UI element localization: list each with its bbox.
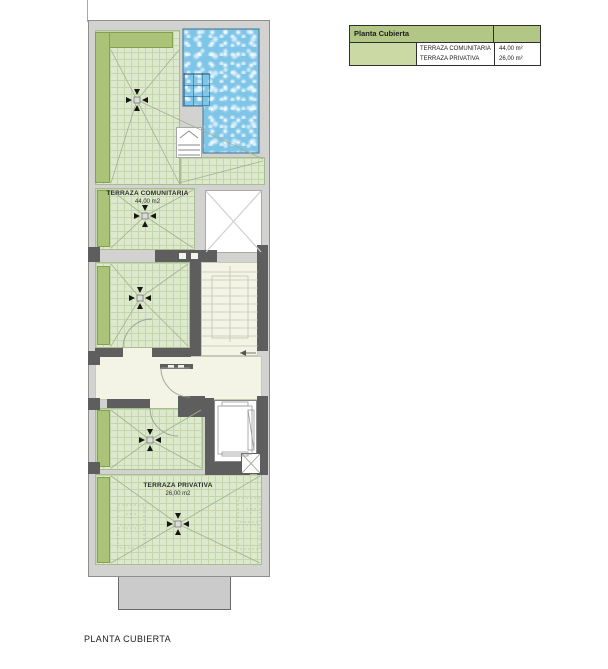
sheet-title: PLANTA CUBIERTA	[84, 634, 171, 644]
wall-stub	[88, 462, 100, 474]
floor-plan-sheet: TERRAZA COMUNITARIA 44,00 m2 TERRAZA PRI…	[0, 0, 608, 669]
legend-values: 44,00 m² 26,00 m²	[495, 43, 540, 65]
wall-stub	[160, 364, 193, 369]
planter-left-3	[97, 266, 110, 345]
terrace-strip-below-pool	[180, 157, 265, 185]
legend-value: 44,00 m²	[499, 44, 540, 54]
door-opening	[123, 348, 152, 357]
skylight-shaft	[205, 190, 262, 253]
legend-header: Planta Cubierta	[350, 26, 494, 42]
door-opening	[150, 399, 178, 408]
wall-slot	[191, 253, 198, 259]
legend-color-swatch	[350, 43, 417, 65]
terrace-area: 44,00 m2	[105, 198, 190, 206]
planter-left-1	[95, 32, 110, 183]
pool-ladder	[176, 127, 202, 158]
wall-segment	[178, 396, 205, 417]
vent-shaft	[241, 453, 261, 474]
planter-left-4	[97, 410, 110, 467]
planter-left-5	[97, 477, 110, 563]
wall-stub	[88, 247, 100, 262]
staircase	[201, 262, 258, 356]
legend-header-spacer	[494, 26, 540, 42]
wall-stub	[257, 245, 268, 351]
legend-label: TERRAZA PRIVATIVA	[420, 54, 494, 64]
legend-body-row: TERRAZA COMUNITARIA TERRAZA PRIVATIVA 44…	[350, 42, 540, 65]
roof-eave	[118, 577, 231, 610]
wall-segment	[190, 262, 201, 356]
legend-labels: TERRAZA COMUNITARIA TERRAZA PRIVATIVA	[417, 43, 495, 65]
private-terrace-label: TERRAZA PRIVATIVA 26,00 m2	[128, 481, 228, 498]
private-terrace-upper	[95, 408, 203, 470]
wall-slot	[168, 365, 174, 368]
wall-slot	[179, 253, 186, 259]
legend-value: 26,00 m²	[499, 54, 540, 64]
legend-header-row: Planta Cubierta	[350, 26, 540, 42]
wall-segment	[107, 399, 150, 408]
hall-landing	[95, 356, 262, 400]
boundary-line	[87, 0, 88, 22]
terrace-area: 26,00 m2	[128, 490, 228, 498]
wall-slot	[178, 365, 184, 368]
communal-terrace-label: TERRAZA COMUNITARIA 44,00 m2	[105, 189, 190, 206]
wall-segment	[155, 250, 217, 262]
wall-stub	[88, 351, 100, 365]
legend-table: Planta Cubierta TERRAZA COMUNITARIA TERR…	[349, 25, 541, 66]
wall-segment	[152, 348, 191, 357]
terrace-name: TERRAZA PRIVATIVA	[128, 481, 228, 490]
legend-label: TERRAZA COMUNITARIA	[420, 44, 494, 54]
pool-steps	[183, 73, 210, 106]
wall-stub	[88, 398, 100, 410]
terrace-name: TERRAZA COMUNITARIA	[105, 189, 190, 198]
